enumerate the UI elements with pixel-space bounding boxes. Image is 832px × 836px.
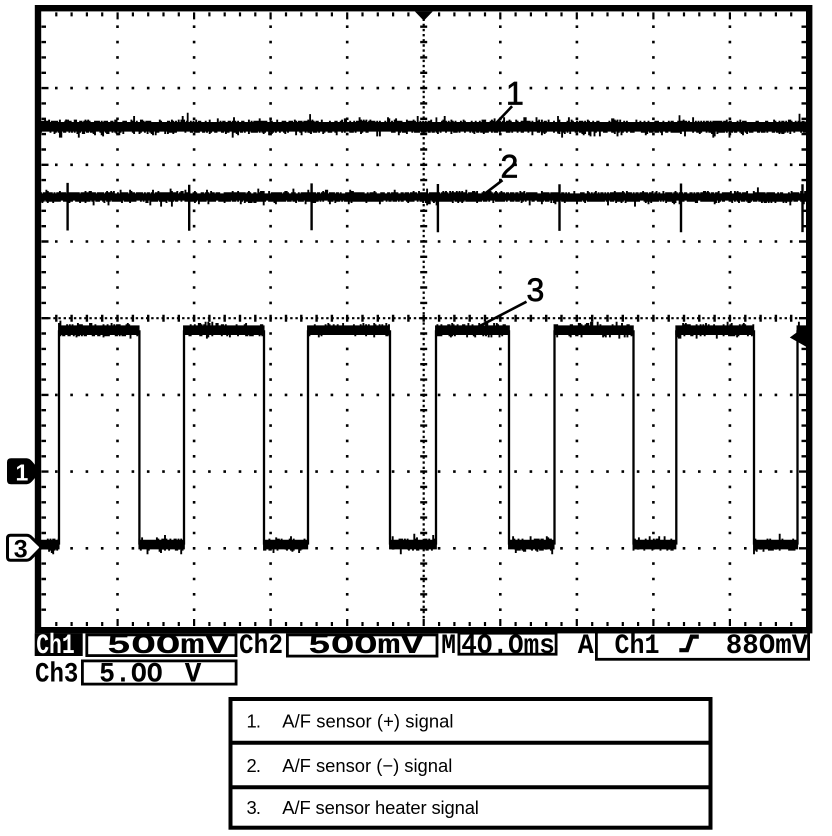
- svg-text:2.: 2.: [247, 755, 262, 776]
- svg-text:5OOmV: 5OOmV: [308, 631, 424, 662]
- svg-text:1: 1: [16, 459, 29, 485]
- svg-text:3.: 3.: [247, 797, 262, 818]
- svg-text:88OmV: 88OmV: [726, 631, 809, 662]
- svg-text:Ch1: Ch1: [615, 631, 660, 662]
- svg-text:Ch3: Ch3: [35, 659, 78, 690]
- svg-text:5.OOV: 5.OOV: [99, 659, 201, 690]
- svg-text:A/F sensor (+) signal: A/F sensor (+) signal: [282, 711, 453, 732]
- svg-text:A/F sensor heater signal: A/F sensor heater signal: [282, 797, 479, 818]
- svg-text:2: 2: [501, 149, 519, 185]
- svg-text:1.: 1.: [247, 711, 262, 732]
- svg-text:A: A: [578, 631, 594, 662]
- svg-text:5OOmV: 5OOmV: [107, 631, 230, 662]
- svg-text:1: 1: [506, 76, 524, 112]
- svg-text:A/F sensor (−) signal: A/F sensor (−) signal: [282, 755, 452, 776]
- svg-text:3: 3: [14, 535, 28, 563]
- svg-text:M: M: [441, 631, 456, 662]
- svg-text:4O.Oms: 4O.Oms: [461, 631, 555, 662]
- svg-text:Ch1: Ch1: [36, 631, 74, 662]
- svg-text:3: 3: [527, 272, 545, 308]
- svg-text:Ch2: Ch2: [239, 631, 283, 662]
